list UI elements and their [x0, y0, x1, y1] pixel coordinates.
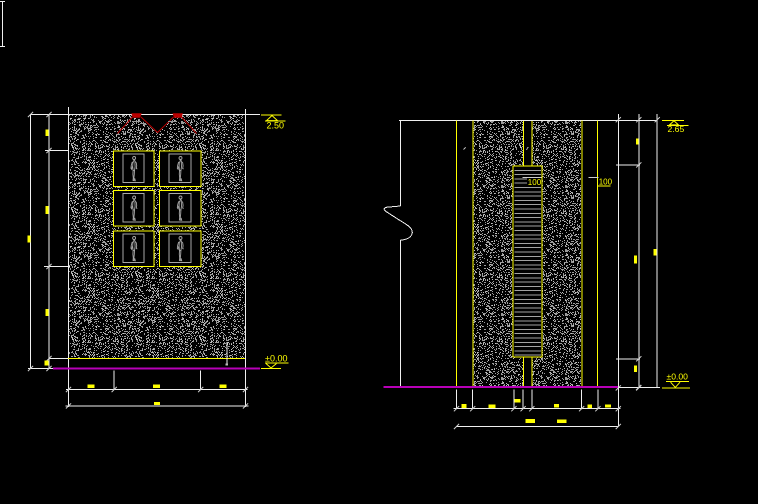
svg-text:100: 100 [599, 177, 613, 186]
svg-text:100: 100 [528, 178, 542, 187]
svg-text:2.50: 2.50 [267, 121, 285, 131]
svg-text:2.65: 2.65 [668, 124, 685, 134]
svg-text:±0.00: ±0.00 [667, 372, 689, 382]
svg-text:±0.00: ±0.00 [265, 354, 287, 364]
